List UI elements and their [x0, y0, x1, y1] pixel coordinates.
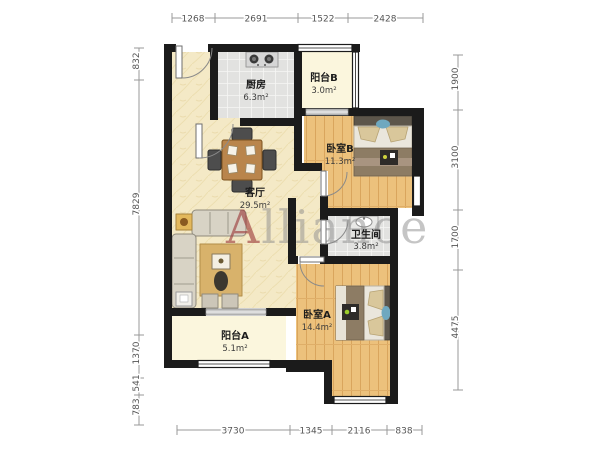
- dim-top-2: 2691: [245, 15, 268, 25]
- coffee-table-object: [214, 271, 228, 291]
- wall-segment: [390, 208, 398, 404]
- bed-a: [336, 286, 391, 340]
- wall-segment: [164, 44, 172, 368]
- floor-plan-drawing: Alliance: [0, 0, 600, 450]
- wall-segment: [288, 256, 298, 264]
- wall-segment: [286, 360, 332, 372]
- dim-bottom-4: 838: [395, 427, 412, 437]
- room-label-bedroom-b: 卧室B: [326, 142, 354, 155]
- wall-segment: [320, 196, 328, 220]
- wall-segment: [164, 308, 206, 316]
- wall-segment: [164, 360, 198, 368]
- dim-bottom-2: 1345: [300, 427, 323, 437]
- room-area-bathroom: 3.8m²: [353, 242, 378, 252]
- room-label-bedroom-a: 卧室A: [303, 308, 331, 321]
- room-label-bathroom: 卫生间: [351, 228, 381, 241]
- dim-left-5: 783: [132, 398, 142, 415]
- lamp-icon: [382, 306, 391, 320]
- dim-right-4: 4475: [451, 316, 461, 339]
- dining-chair-north: [232, 128, 252, 140]
- ottoman-1: [202, 294, 218, 308]
- wall-segment: [266, 308, 296, 316]
- room-label-balcony-a: 阳台A: [221, 329, 249, 342]
- wall-segment: [294, 44, 302, 171]
- room-label-kitchen: 厨房: [246, 78, 266, 91]
- room-label-living: 客厅: [244, 186, 265, 199]
- wall-segment: [240, 118, 294, 126]
- room-area-kitchen: 6.3m²: [243, 93, 268, 103]
- room-area-living: 29.5m²: [240, 201, 271, 211]
- wall-segment: [324, 396, 334, 404]
- floor-plan-page: Alliance: [0, 0, 600, 450]
- wall-segment: [322, 208, 398, 216]
- dining-chair-west: [208, 150, 221, 170]
- ottoman-2: [222, 294, 238, 308]
- dim-top-4: 2428: [374, 15, 397, 25]
- dim-right-2: 3100: [451, 145, 461, 168]
- wall-segment: [294, 163, 322, 171]
- wall-segment: [324, 256, 398, 264]
- lamp-icon: [376, 120, 390, 129]
- room-area-balcony-b: 3.0m²: [311, 86, 336, 96]
- wall-segment: [352, 44, 360, 52]
- dim-top-3: 1522: [312, 15, 335, 25]
- dim-left-3: 1370: [132, 341, 142, 364]
- tv-box: [380, 150, 398, 165]
- room-area-balcony-a: 5.1m²: [222, 344, 247, 354]
- bed-b: [354, 116, 412, 176]
- dim-left-2: 7829: [132, 192, 142, 215]
- wall-segment: [324, 372, 332, 398]
- room-area-bedroom-b: 11.3m²: [325, 157, 356, 167]
- dim-top-1: 1268: [182, 15, 205, 25]
- window-bedroom-b-right: [414, 176, 421, 206]
- wall-segment: [208, 44, 300, 52]
- stove-icon: [246, 52, 278, 67]
- room-label-balcony-b: 阳台B: [310, 71, 338, 84]
- tv-box: [342, 304, 359, 320]
- dim-left-1: 832: [132, 52, 142, 69]
- dim-right-1: 1900: [451, 67, 461, 90]
- dim-right-3: 1700: [451, 225, 461, 248]
- dim-bottom-1: 3730: [222, 427, 245, 437]
- dining-chair-east: [263, 150, 276, 170]
- dim-left-4: 541: [132, 374, 142, 391]
- wall-segment: [288, 198, 296, 264]
- room-area-bedroom-a: 14.4m²: [302, 323, 333, 333]
- dim-bottom-3: 2116: [348, 427, 371, 437]
